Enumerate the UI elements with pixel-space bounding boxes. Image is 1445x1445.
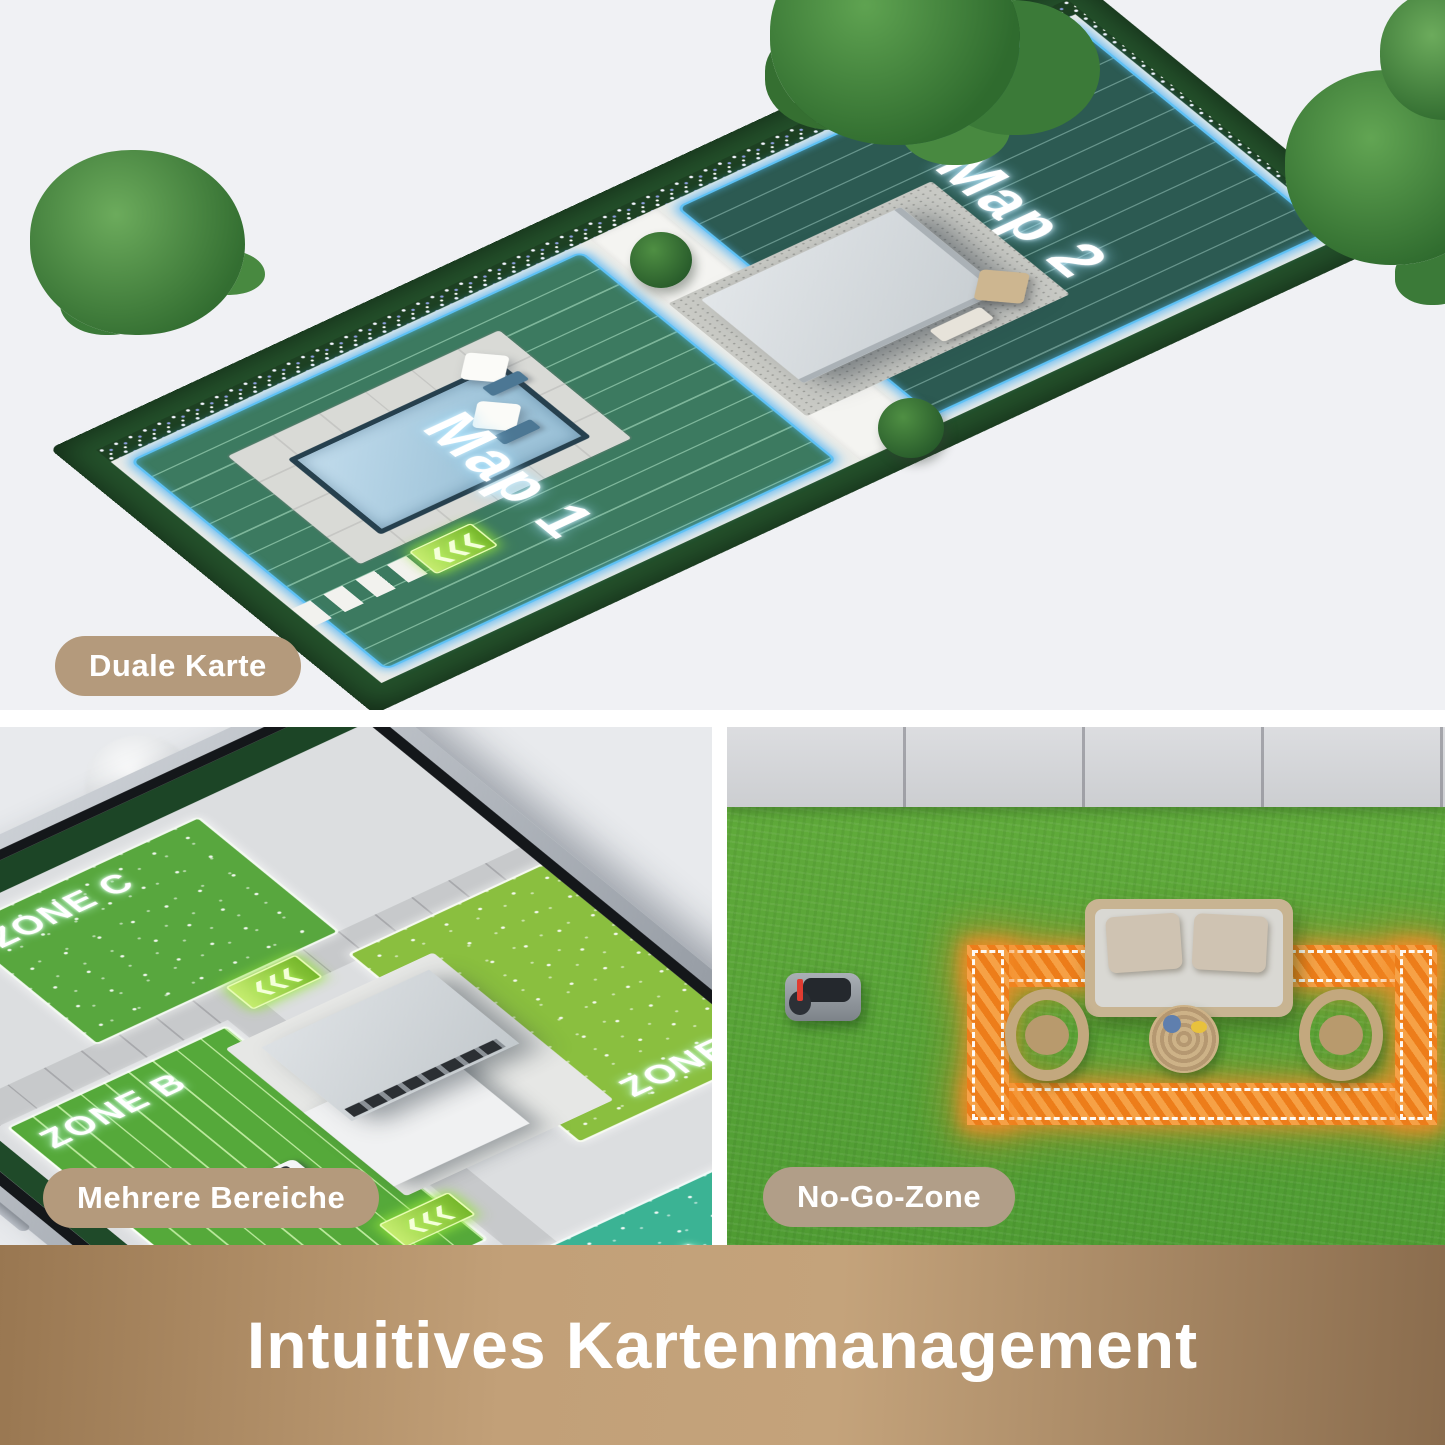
vase: [1163, 1015, 1181, 1033]
no-go-zone-badge: No-Go-Zone: [763, 1167, 1015, 1227]
product-image: Map 1 ❮❮❮ Map 2 Duale Karte: [0, 0, 1445, 1445]
wicker-chair: [1299, 989, 1383, 1081]
dual-map-badge: Duale Karte: [55, 636, 301, 696]
tree: [30, 150, 245, 335]
dual-map-panel: Map 1 ❮❮❮ Map 2 Duale Karte: [0, 0, 1445, 710]
cushion: [1192, 913, 1269, 973]
coffee-table: [1149, 1005, 1219, 1073]
multi-zone-panel: ZONE C ZONE B ZONE D ZONE A: [0, 727, 712, 1245]
bush: [878, 398, 944, 458]
mower-wheel: [789, 991, 811, 1015]
robot-mower: [785, 973, 861, 1021]
fruit-bowl: [1191, 1021, 1207, 1033]
no-go-boundary-right: [1395, 945, 1437, 1125]
cushion: [1105, 912, 1183, 973]
robot-mower: [1016, 84, 1049, 103]
stone-patio: [727, 727, 1445, 807]
garden-sofa: [1085, 899, 1293, 1017]
multi-zone-badge: Mehrere Bereiche: [43, 1168, 379, 1228]
patio-umbrella: [973, 269, 1029, 304]
no-go-boundary-left: [967, 945, 1009, 1125]
wicker-chair: [1005, 989, 1089, 1081]
no-go-zone-panel: No-Go-Zone: [727, 727, 1445, 1245]
bush: [630, 232, 692, 288]
zone-a-label: ZONE A: [559, 1235, 712, 1245]
footer-band: Intuitives Kartenmanagement: [0, 1245, 1445, 1445]
zone-d-label: ZONE D: [611, 1016, 712, 1103]
page-title: Intuitives Kartenmanagement: [247, 1307, 1198, 1383]
no-go-boundary-bottom: [967, 1083, 1437, 1125]
garden-3d-scene: Map 1 ❮❮❮ Map 2: [49, 0, 1396, 710]
